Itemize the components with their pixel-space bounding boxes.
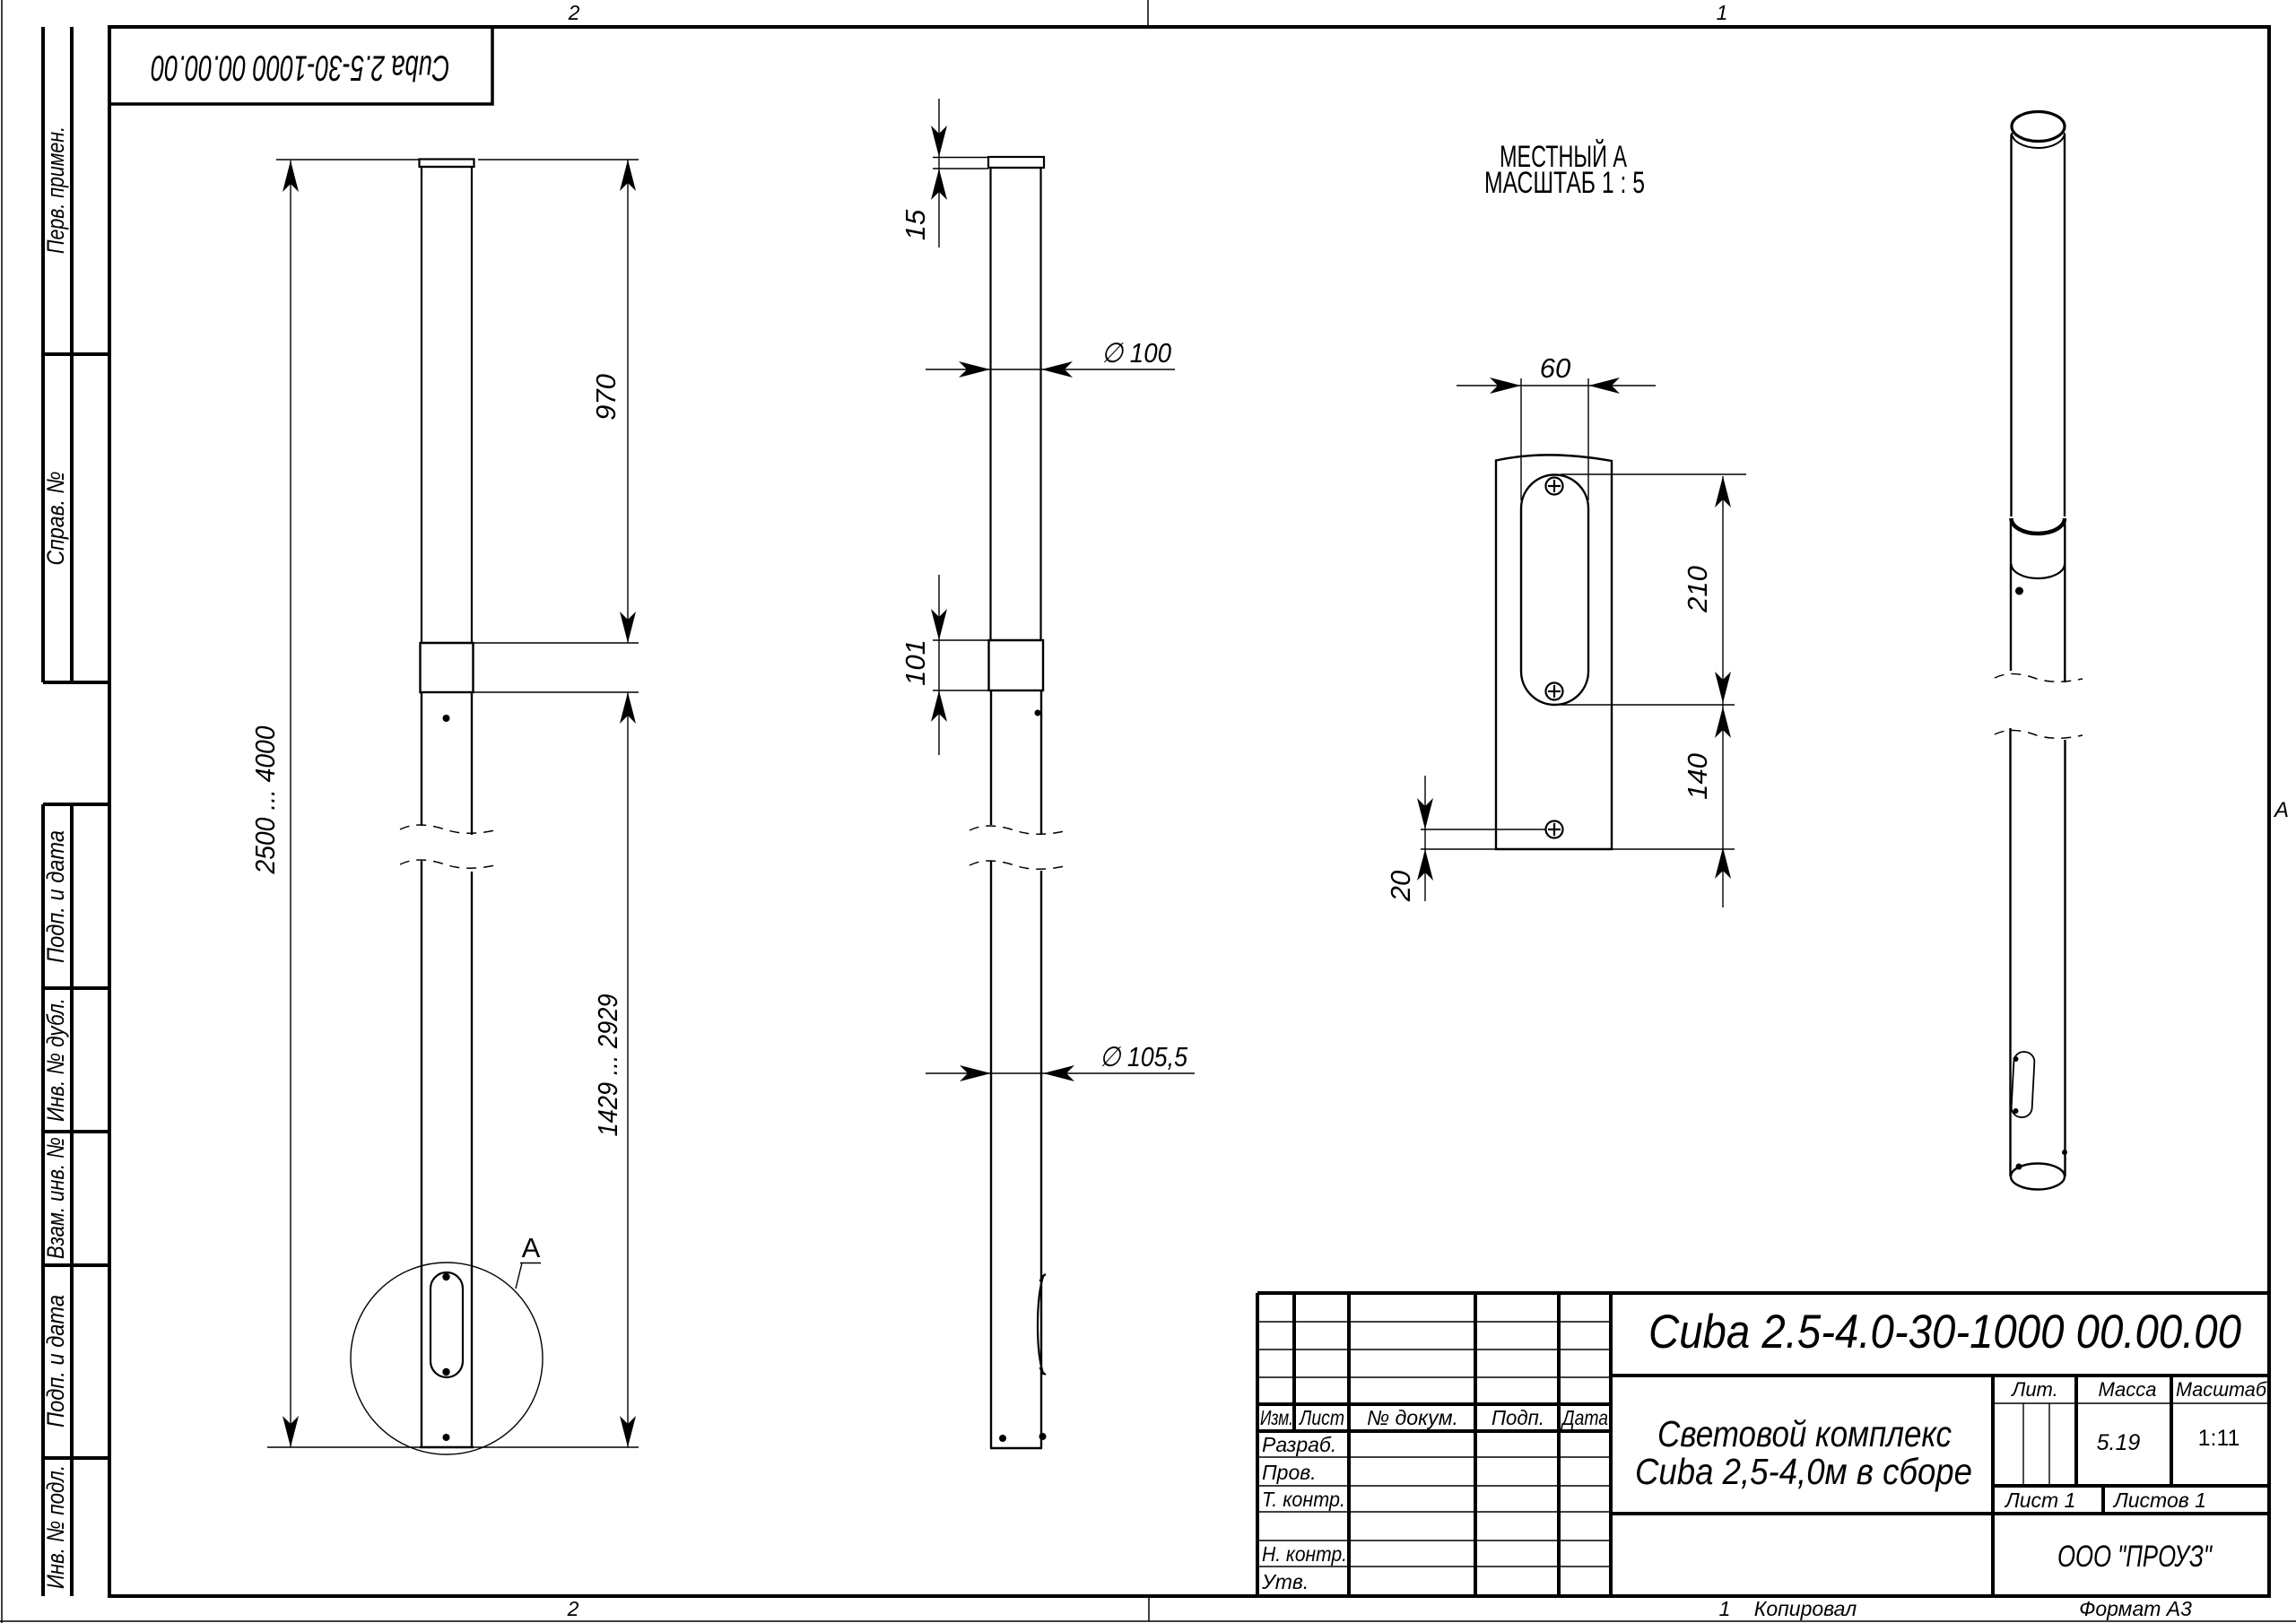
svg-text:1: 1 xyxy=(1717,1,1728,24)
svg-text:2: 2 xyxy=(568,1,580,24)
svg-text:Инв. № дубл.: Инв. № дубл. xyxy=(42,998,69,1122)
svg-text:Cuba 2,5-4,0м в сборе: Cuba 2,5-4,0м в сборе xyxy=(1635,1451,1972,1492)
svg-text:∅ 105,5: ∅ 105,5 xyxy=(1100,1041,1188,1072)
svg-text:1429 ... 2929: 1429 ... 2929 xyxy=(592,994,623,1137)
svg-text:A: A xyxy=(522,1232,541,1263)
svg-text:Масса: Масса xyxy=(2098,1378,2156,1401)
svg-text:Дата: Дата xyxy=(1560,1406,1608,1429)
svg-text:210: 210 xyxy=(1682,566,1713,613)
svg-text:Утв.: Утв. xyxy=(1261,1570,1309,1593)
svg-text:Взам. инв. №: Взам. инв. № xyxy=(42,1137,69,1259)
svg-text:Т. контр.: Т. контр. xyxy=(1262,1488,1345,1511)
svg-text:1:11: 1:11 xyxy=(2198,1426,2240,1451)
svg-text:101: 101 xyxy=(900,639,931,686)
svg-text:МАСШТАБ 1 : 5: МАСШТАБ 1 : 5 xyxy=(1484,166,1645,200)
svg-text:A: A xyxy=(2273,798,2289,822)
svg-text:Подп.: Подп. xyxy=(1492,1406,1544,1429)
svg-text:Изм.: Изм. xyxy=(1260,1406,1293,1429)
svg-text:Подп. и дата: Подп. и дата xyxy=(42,1295,69,1428)
svg-text:Листов 1: Листов 1 xyxy=(2112,1488,2206,1512)
svg-text:Перв. примен.: Перв. примен. xyxy=(42,126,69,254)
svg-text:Пров.: Пров. xyxy=(1262,1461,1317,1484)
svg-text:Формат А3: Формат А3 xyxy=(2079,1597,2192,1620)
svg-text:1: 1 xyxy=(1719,1597,1731,1620)
svg-text:20: 20 xyxy=(1385,871,1416,902)
svg-text:Н. контр.: Н. контр. xyxy=(1262,1542,1347,1566)
svg-text:140: 140 xyxy=(1682,753,1713,800)
svg-text:Лист 1: Лист 1 xyxy=(2004,1488,2075,1512)
svg-text:Световой комплекс: Световой комплекс xyxy=(1657,1413,1952,1454)
svg-text:Разраб.: Разраб. xyxy=(1262,1433,1336,1456)
svg-text:2: 2 xyxy=(567,1597,579,1620)
svg-text:Лит.: Лит. xyxy=(2010,1378,2058,1401)
svg-text:∅ 100: ∅ 100 xyxy=(1101,337,1171,369)
svg-text:Инв. № подл.: Инв. № подл. xyxy=(42,1465,69,1589)
svg-text:5.19: 5.19 xyxy=(2097,1430,2141,1455)
svg-text:Подп. и дата: Подп. и дата xyxy=(42,830,69,963)
svg-text:ООО "ПРОУЗ": ООО "ПРОУЗ" xyxy=(2057,1540,2213,1574)
svg-text:15: 15 xyxy=(900,209,931,240)
svg-text:Лист: Лист xyxy=(1298,1406,1344,1429)
svg-text:Cuba 2.5-4.0-30-1000 00.00.00: Cuba 2.5-4.0-30-1000 00.00.00 xyxy=(1648,1306,2241,1358)
svg-text:970: 970 xyxy=(590,374,622,421)
svg-text:№ докум.: № докум. xyxy=(1367,1406,1458,1429)
svg-text:Справ. №: Справ. № xyxy=(42,472,69,566)
svg-text:2500 ... 4000: 2500 ... 4000 xyxy=(249,726,281,875)
svg-text:60: 60 xyxy=(1540,352,1570,384)
svg-text:Копировал: Копировал xyxy=(1754,1597,1857,1620)
svg-text:Масштаб: Масштаб xyxy=(2176,1378,2268,1401)
svg-text:Cuba 2.5-30-1000 00.00.00: Cuba 2.5-30-1000 00.00.00 xyxy=(152,48,450,87)
